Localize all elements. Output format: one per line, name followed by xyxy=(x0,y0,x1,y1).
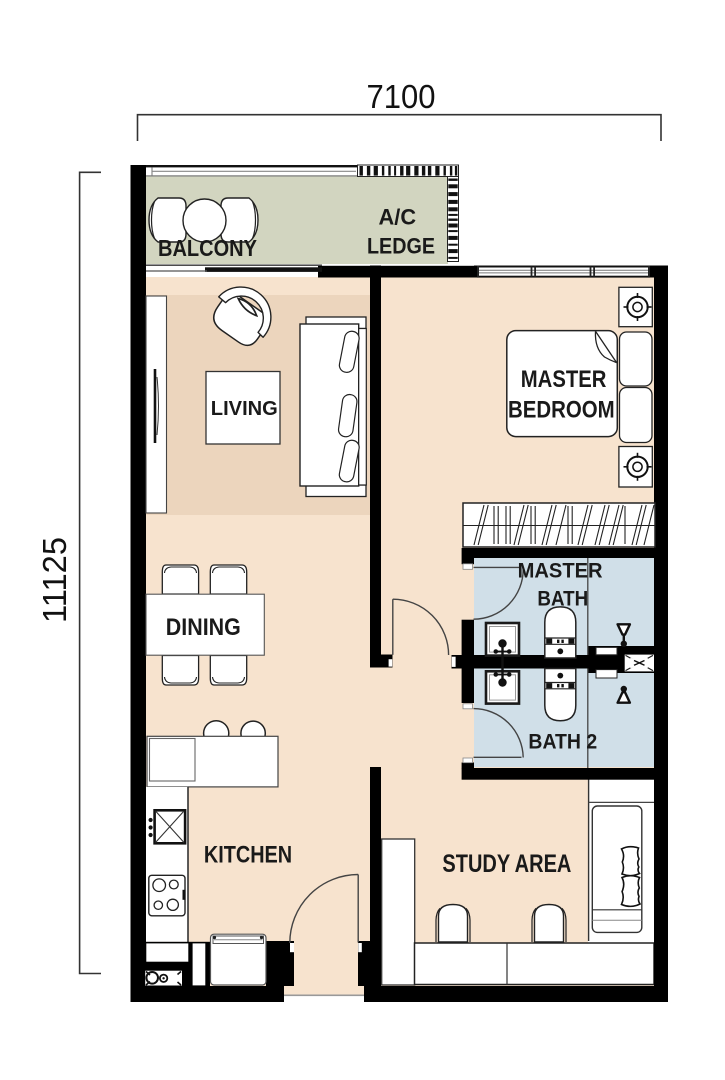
svg-text:KITCHEN: KITCHEN xyxy=(204,842,292,869)
svg-text:MASTER: MASTER xyxy=(518,559,603,582)
svg-text:BATH 2: BATH 2 xyxy=(528,731,597,754)
svg-text:BATH: BATH xyxy=(537,588,588,611)
svg-text:LEDGE: LEDGE xyxy=(367,234,435,259)
svg-text:BEDROOM: BEDROOM xyxy=(508,396,615,423)
svg-text:A/C: A/C xyxy=(379,205,417,230)
svg-text:11125: 11125 xyxy=(36,537,73,623)
svg-text:MASTER: MASTER xyxy=(521,366,607,393)
svg-text:7100: 7100 xyxy=(367,78,436,115)
svg-text:LIVING: LIVING xyxy=(211,398,278,420)
svg-text:BALCONY: BALCONY xyxy=(158,235,257,261)
svg-text:STUDY AREA: STUDY AREA xyxy=(442,850,571,878)
svg-text:DINING: DINING xyxy=(166,614,241,641)
